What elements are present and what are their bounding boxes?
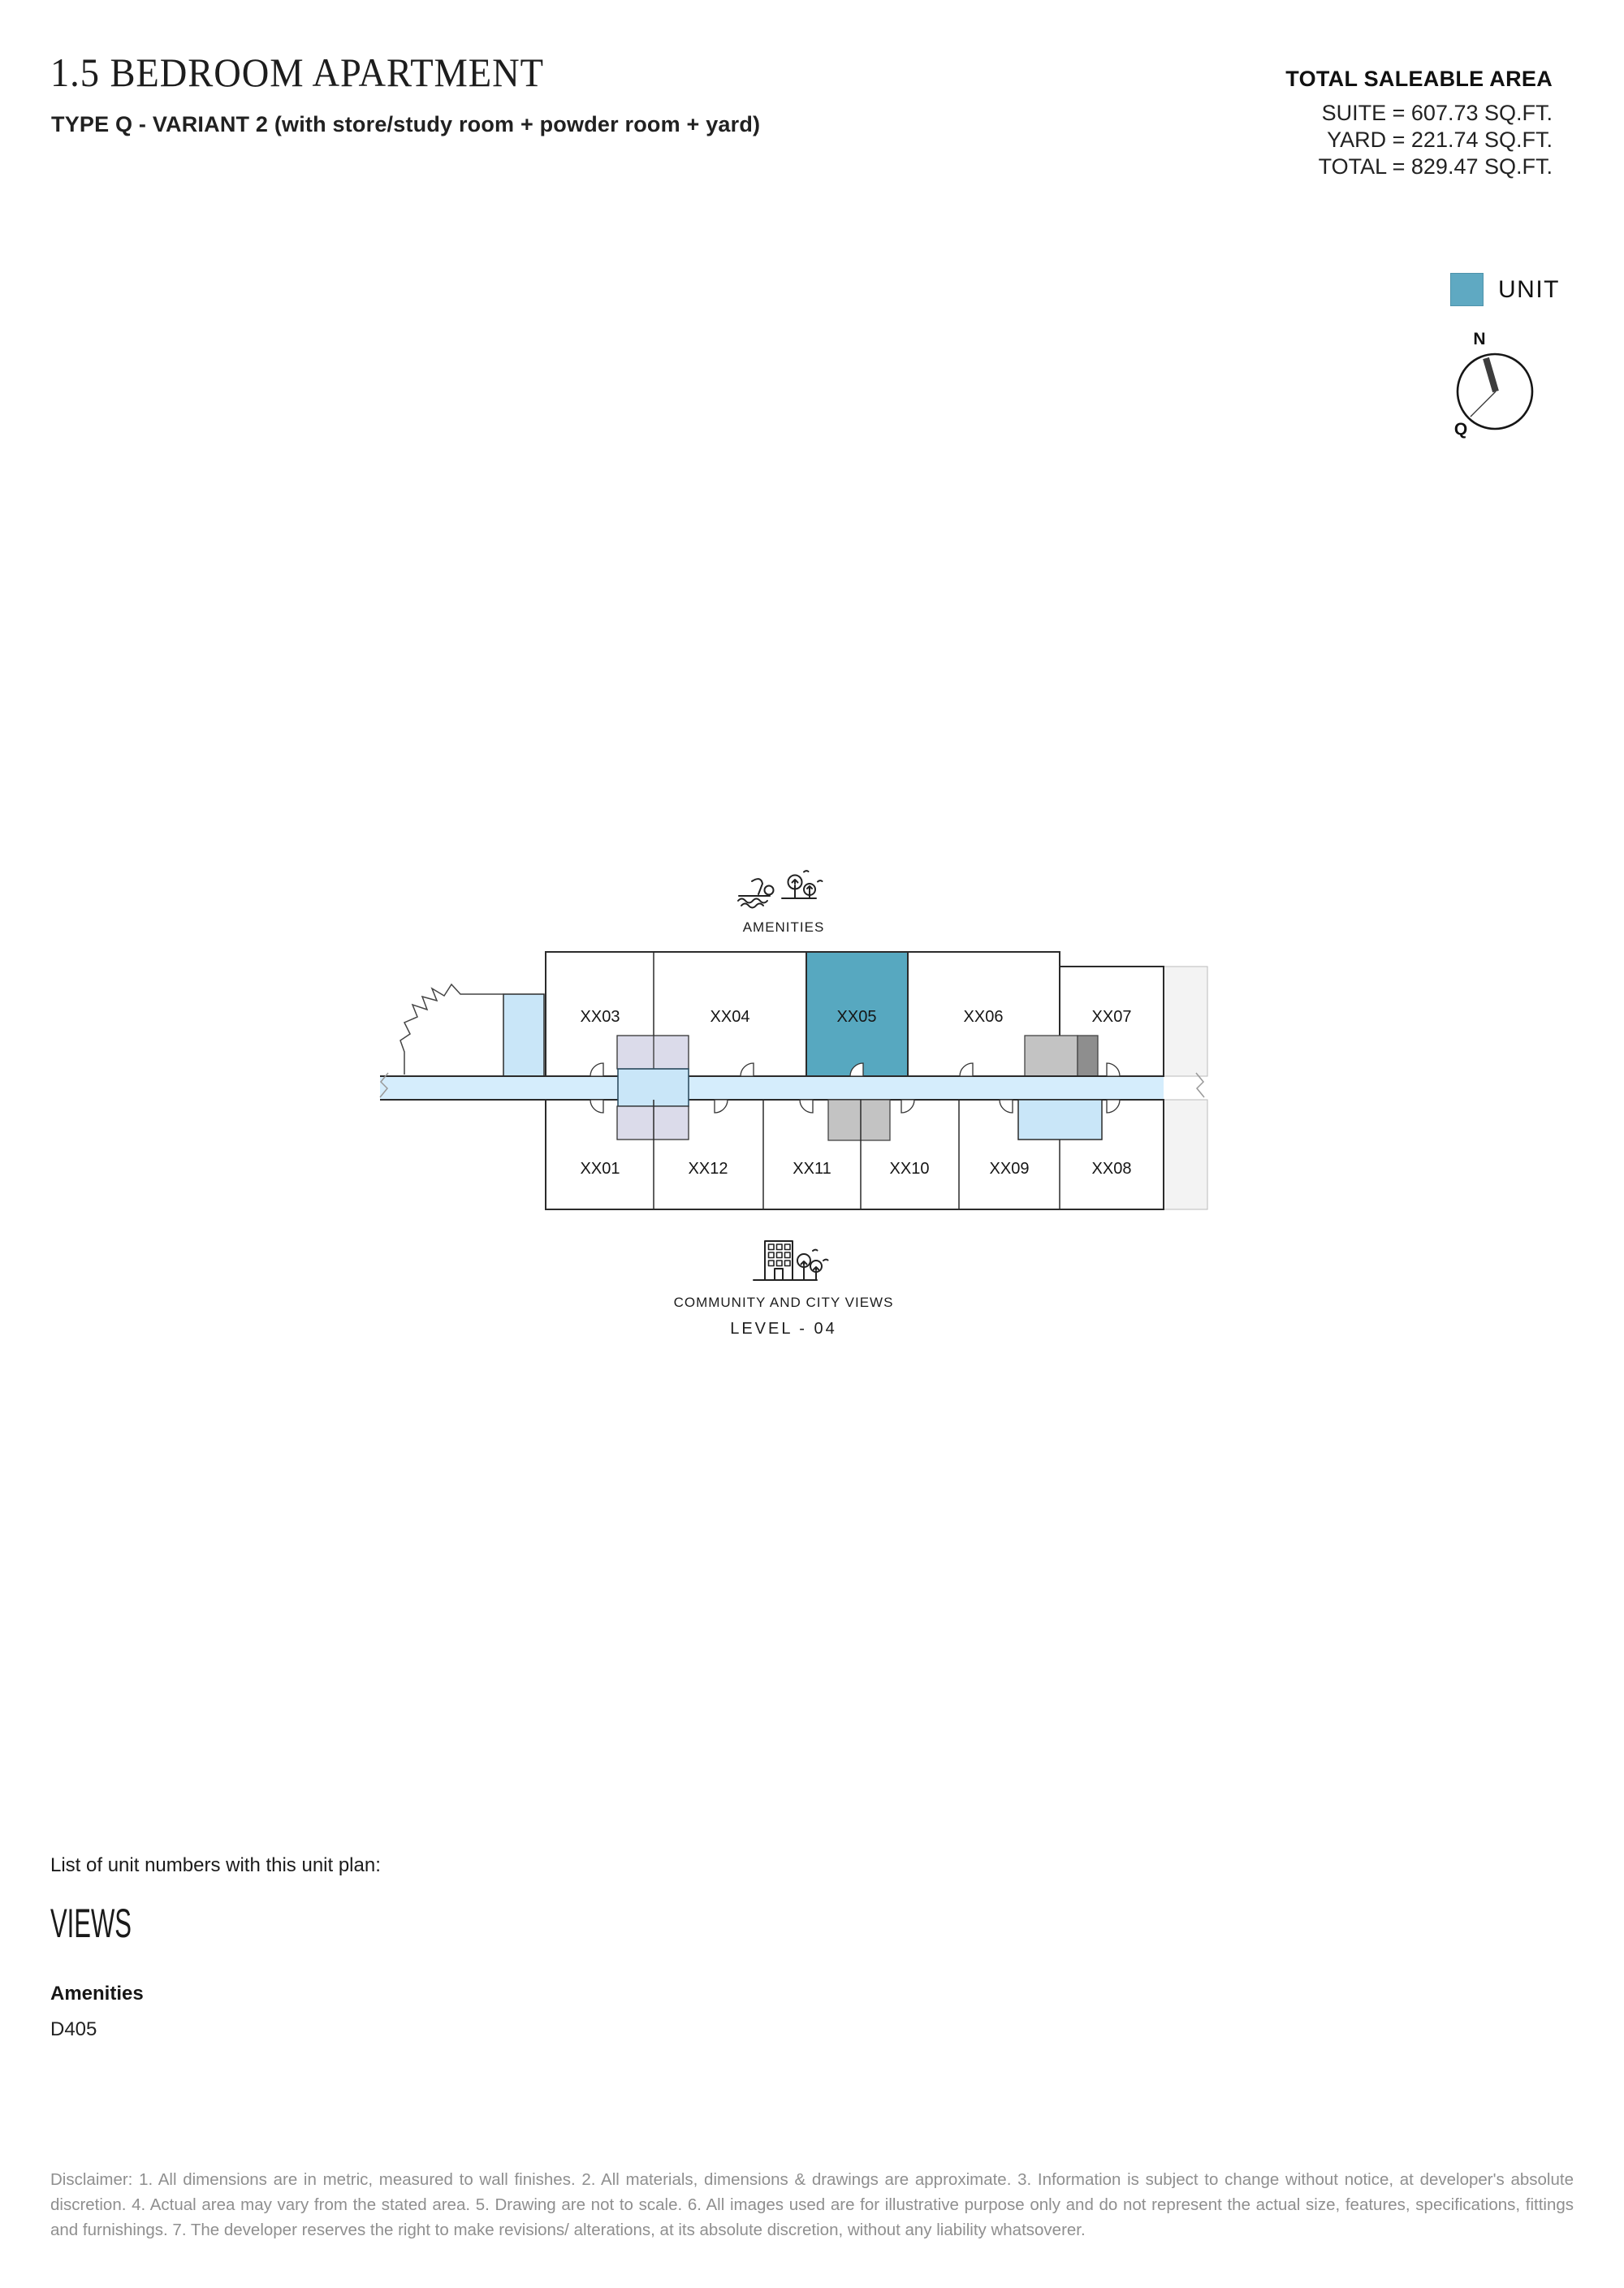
amenities-caption: AMENITIES bbox=[743, 919, 825, 935]
compass-north-label: N bbox=[1473, 330, 1485, 348]
unit-swatch-rect bbox=[1451, 274, 1484, 306]
compass-pointer-label: Q bbox=[1454, 420, 1467, 439]
community-city-icon bbox=[754, 1241, 828, 1280]
unit-list-section: List of unit numbers with this unit plan… bbox=[50, 1854, 381, 2041]
unit-label-xx05: XX05 bbox=[837, 1008, 877, 1026]
saleable-area-heading: TOTAL SALEABLE AREA bbox=[1285, 67, 1553, 92]
elevator-core-upper bbox=[617, 1036, 689, 1069]
unit-label-xx06: XX06 bbox=[964, 1008, 1004, 1026]
saleable-area-block: TOTAL SALEABLE AREA SUITE = 607.73 SQ.FT… bbox=[1285, 67, 1553, 180]
compass-pointer-line bbox=[1471, 391, 1496, 417]
unit-label-xx10: XX10 bbox=[890, 1160, 930, 1178]
page-title: 1.5 BEDROOM APARTMENT bbox=[50, 49, 544, 96]
unit-legend: UNIT bbox=[1450, 273, 1560, 306]
views-heading: VIEWS bbox=[50, 1900, 255, 1947]
level-caption: LEVEL - 04 bbox=[730, 1320, 837, 1338]
unit-label-xx11: XX11 bbox=[793, 1160, 831, 1178]
compass-needle-icon bbox=[1486, 358, 1496, 391]
corridor-arm bbox=[503, 994, 544, 1076]
unit-label-xx07: XX07 bbox=[1092, 1008, 1132, 1026]
unit-legend-swatch bbox=[1450, 273, 1484, 306]
service-box-lower bbox=[828, 1100, 890, 1140]
community-caption: COMMUNITY AND CITY VIEWS bbox=[674, 1295, 894, 1310]
plan-break-outline bbox=[400, 984, 503, 1075]
unit-legend-label: UNIT bbox=[1498, 276, 1560, 304]
amenities-icon bbox=[738, 871, 823, 907]
corridor bbox=[380, 1076, 1164, 1100]
unit-label-xx01: XX01 bbox=[581, 1160, 620, 1178]
unit-label-xx03: XX03 bbox=[581, 1008, 620, 1026]
unit-label-xx12: XX12 bbox=[689, 1160, 728, 1178]
unit-label-xx09: XX09 bbox=[990, 1160, 1030, 1178]
plan-edge-strip-bottom bbox=[1164, 1100, 1207, 1209]
service-shaft-dark bbox=[1078, 1036, 1098, 1076]
page-subtitle: TYPE Q - VARIANT 2 (with store/study roo… bbox=[51, 112, 760, 137]
service-shaft bbox=[1025, 1036, 1078, 1076]
disclaimer-text: Disclaimer: 1. All dimensions are in met… bbox=[50, 2167, 1574, 2243]
unit-label-xx04: XX04 bbox=[710, 1008, 750, 1026]
saleable-area-yard: YARD = 221.74 SQ.FT. bbox=[1285, 127, 1553, 154]
plan-edge-strip-top bbox=[1164, 967, 1207, 1076]
saleable-area-suite: SUITE = 607.73 SQ.FT. bbox=[1285, 100, 1553, 127]
brochure-page: 1.5 BEDROOM APARTMENT TYPE Q - VARIANT 2… bbox=[0, 0, 1624, 2288]
compass: N Q bbox=[1437, 323, 1559, 445]
elevator-core-lower bbox=[617, 1106, 689, 1140]
view-group-units: D405 bbox=[50, 2018, 381, 2041]
unit-label-xx08: XX08 bbox=[1092, 1160, 1132, 1178]
floor-plan: AMENITIES bbox=[374, 861, 1234, 1348]
view-group-label: Amenities bbox=[50, 1983, 381, 2005]
stair-box bbox=[1018, 1100, 1102, 1140]
unit-list-intro: List of unit numbers with this unit plan… bbox=[50, 1854, 381, 1877]
saleable-area-total: TOTAL = 829.47 SQ.FT. bbox=[1285, 154, 1553, 180]
